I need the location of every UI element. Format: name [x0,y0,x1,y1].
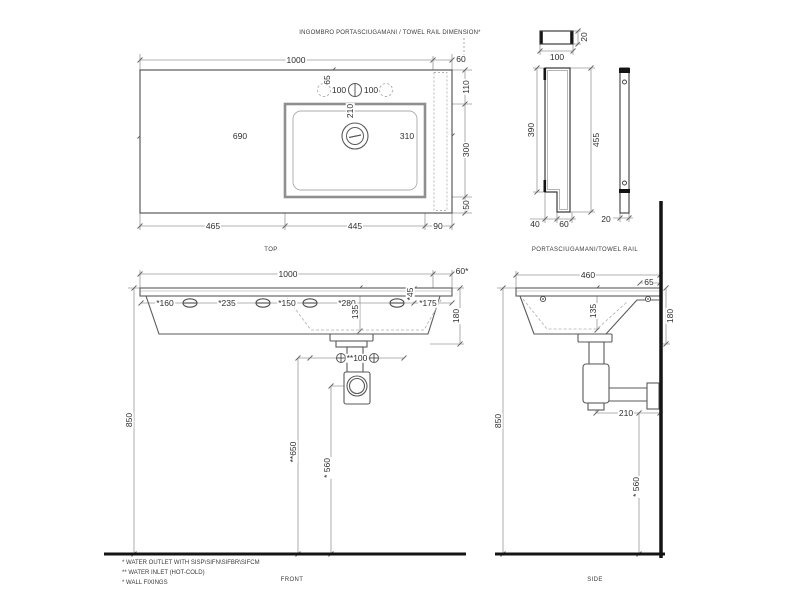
front-view-label: FRONT [280,577,305,583]
top-dim-100-left: 100 [331,86,347,95]
top-dim-65: 65 [323,74,332,85]
top-dim-465: 465 [205,222,221,231]
top-view-drawing [138,38,473,230]
side-dim-850: 850 [494,413,503,429]
front-dim-180: 180 [452,308,461,324]
front-dim-175: *175 [418,299,438,308]
countertop-outline [140,70,452,213]
towel-rail-screw-bottom [623,181,627,185]
technical-drawing-page: INGOMBRO PORTASCIUGAMANI / TOWEL RAIL DI… [0,0,800,600]
front-dim-650: **650 [289,441,298,464]
front-dim-850: 850 [125,412,134,428]
side-dim-560: * 560 [632,476,641,498]
side-drain-trap [578,334,659,410]
wall-escutcheon [647,383,659,409]
side-fixing-holes [540,296,650,301]
top-view-label: TOP [263,247,278,253]
front-dim-135: 135 [351,304,360,320]
footnote-water-inlet: ** WATER INLET (HOT-COLD) [122,570,205,576]
side-dim-180: 180 [666,308,675,324]
side-slab [516,288,661,296]
towel-rail-plan [540,31,573,44]
front-dim-100: **100 [346,354,369,363]
rail-dim-40: 40 [529,220,540,229]
rail-dim-20-top: 20 [580,31,589,42]
front-view-drawing [104,270,466,557]
front-dim-560: * 560 [323,457,332,479]
side-dim-210: 210 [618,409,634,418]
top-dim-690: 690 [232,132,248,141]
top-dim-90: 90 [432,222,443,231]
top-dim-300: 300 [462,142,471,158]
towel-rail-side-band [619,189,630,193]
top-dim-100-right: 100 [363,86,379,95]
front-drain-trap [330,334,373,404]
side-view-ticks [501,273,669,557]
rail-dim-60: 60 [558,220,569,229]
front-dim-160: *160 [155,299,175,308]
side-dim-135: 135 [589,303,598,319]
top-dim-110: 110 [462,79,471,95]
footnote-wall-fixings: * WALL FIXINGS [122,580,168,586]
top-dim-445: 445 [347,222,363,231]
towel-rail-side-top-cap [619,68,630,73]
footnote-water-outlet: * WATER OUTLET WITH SISP\SIFN\SIFBR\SIFC… [122,560,260,566]
top-dim-60: 60 [455,55,466,64]
side-dim-460: 460 [580,271,596,280]
rail-dim-100: 100 [549,53,565,62]
front-dim-45: *45 [406,287,415,302]
rail-dim-455: 455 [592,132,601,148]
rail-dim-20-side: 20 [600,215,611,224]
optional-faucet-hole-right [380,84,393,97]
side-basin-bowl-dashed [523,299,627,329]
top-dim-1000: 1000 [286,56,307,65]
side-view-dim-lines [497,271,670,554]
rail-dim-390: 390 [527,122,536,138]
front-dim-60: 60* [455,267,470,276]
towel-rail-screw-top [623,80,627,84]
front-view-dim-lines [128,270,464,554]
towel-rail-view-label: PORTASCIUGAMANI/TOWEL RAIL [531,247,639,253]
side-view-drawing [495,201,670,558]
towel-rail-dimension-note: INGOMBRO PORTASCIUGAMANI / TOWEL RAIL DI… [298,30,481,36]
towel-rail-front-profile [545,68,570,212]
drawing-geometry [0,0,800,600]
front-dim-1000: 1000 [278,270,299,279]
front-view-ticks [132,272,463,557]
top-dim-210: 210 [346,103,355,119]
side-dim-65: 65 [643,278,654,287]
top-dim-50: 50 [462,199,471,210]
front-dim-150: *150 [277,299,297,308]
side-view-label: SIDE [586,577,604,583]
front-dim-235: *235 [217,299,237,308]
top-dim-310: 310 [399,132,415,141]
towel-rail-view-drawing [530,29,633,224]
